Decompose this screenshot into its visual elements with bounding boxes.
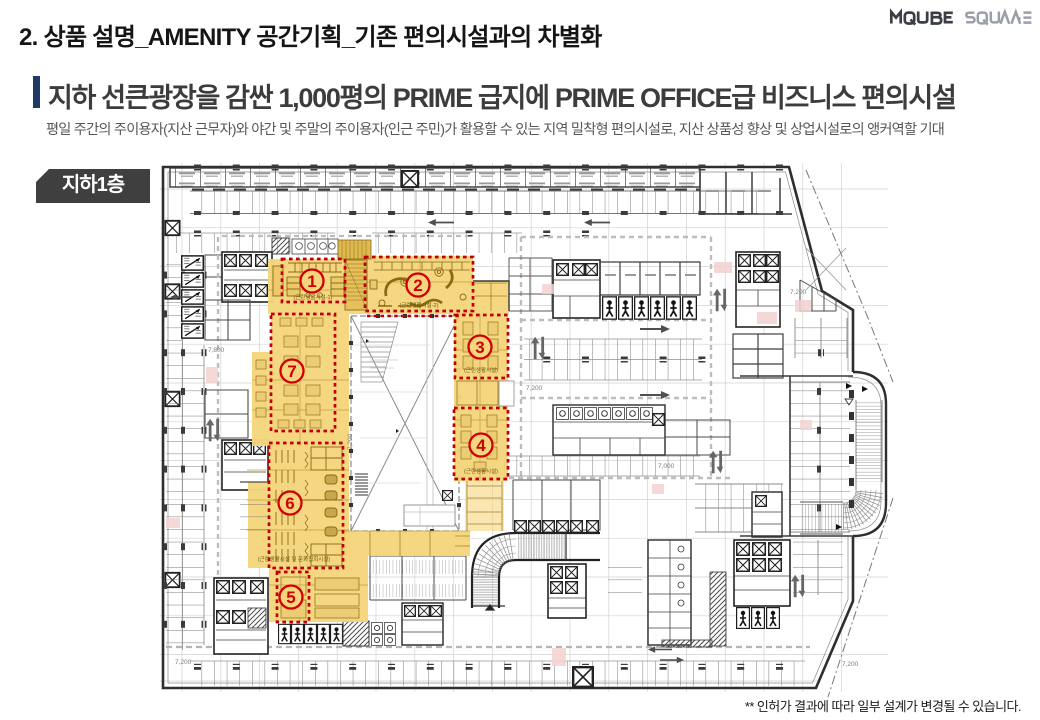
svg-text:6: 6 — [285, 494, 294, 513]
svg-text:7,200: 7,200 — [842, 661, 859, 668]
svg-text:7,200: 7,200 — [175, 659, 192, 666]
svg-text:(근린생활시설 및 문화집회시설): (근린생활시설 및 문화집회시설) — [258, 555, 331, 563]
svg-text:4: 4 — [476, 436, 486, 455]
svg-text:1: 1 — [307, 272, 316, 291]
svg-text:(근린생활시설-1): (근린생활시설-1) — [294, 293, 333, 301]
svg-text:2: 2 — [413, 276, 422, 295]
svg-text:7,800: 7,800 — [208, 347, 225, 354]
svg-text:5: 5 — [286, 588, 295, 607]
svg-text:7,200: 7,200 — [347, 433, 354, 450]
svg-text:3: 3 — [475, 338, 484, 357]
svg-text:(근린생활시설): (근린생활시설) — [464, 467, 498, 475]
svg-text:7: 7 — [287, 362, 296, 381]
svg-text:(근린생활시설-2): (근린생활시설-2) — [400, 301, 439, 309]
svg-text:7,200: 7,200 — [526, 385, 543, 392]
svg-text:7,000: 7,000 — [658, 463, 675, 470]
svg-text:(근린생활시설): (근린생활시설) — [464, 366, 498, 374]
svg-text:7,200: 7,200 — [790, 289, 807, 296]
